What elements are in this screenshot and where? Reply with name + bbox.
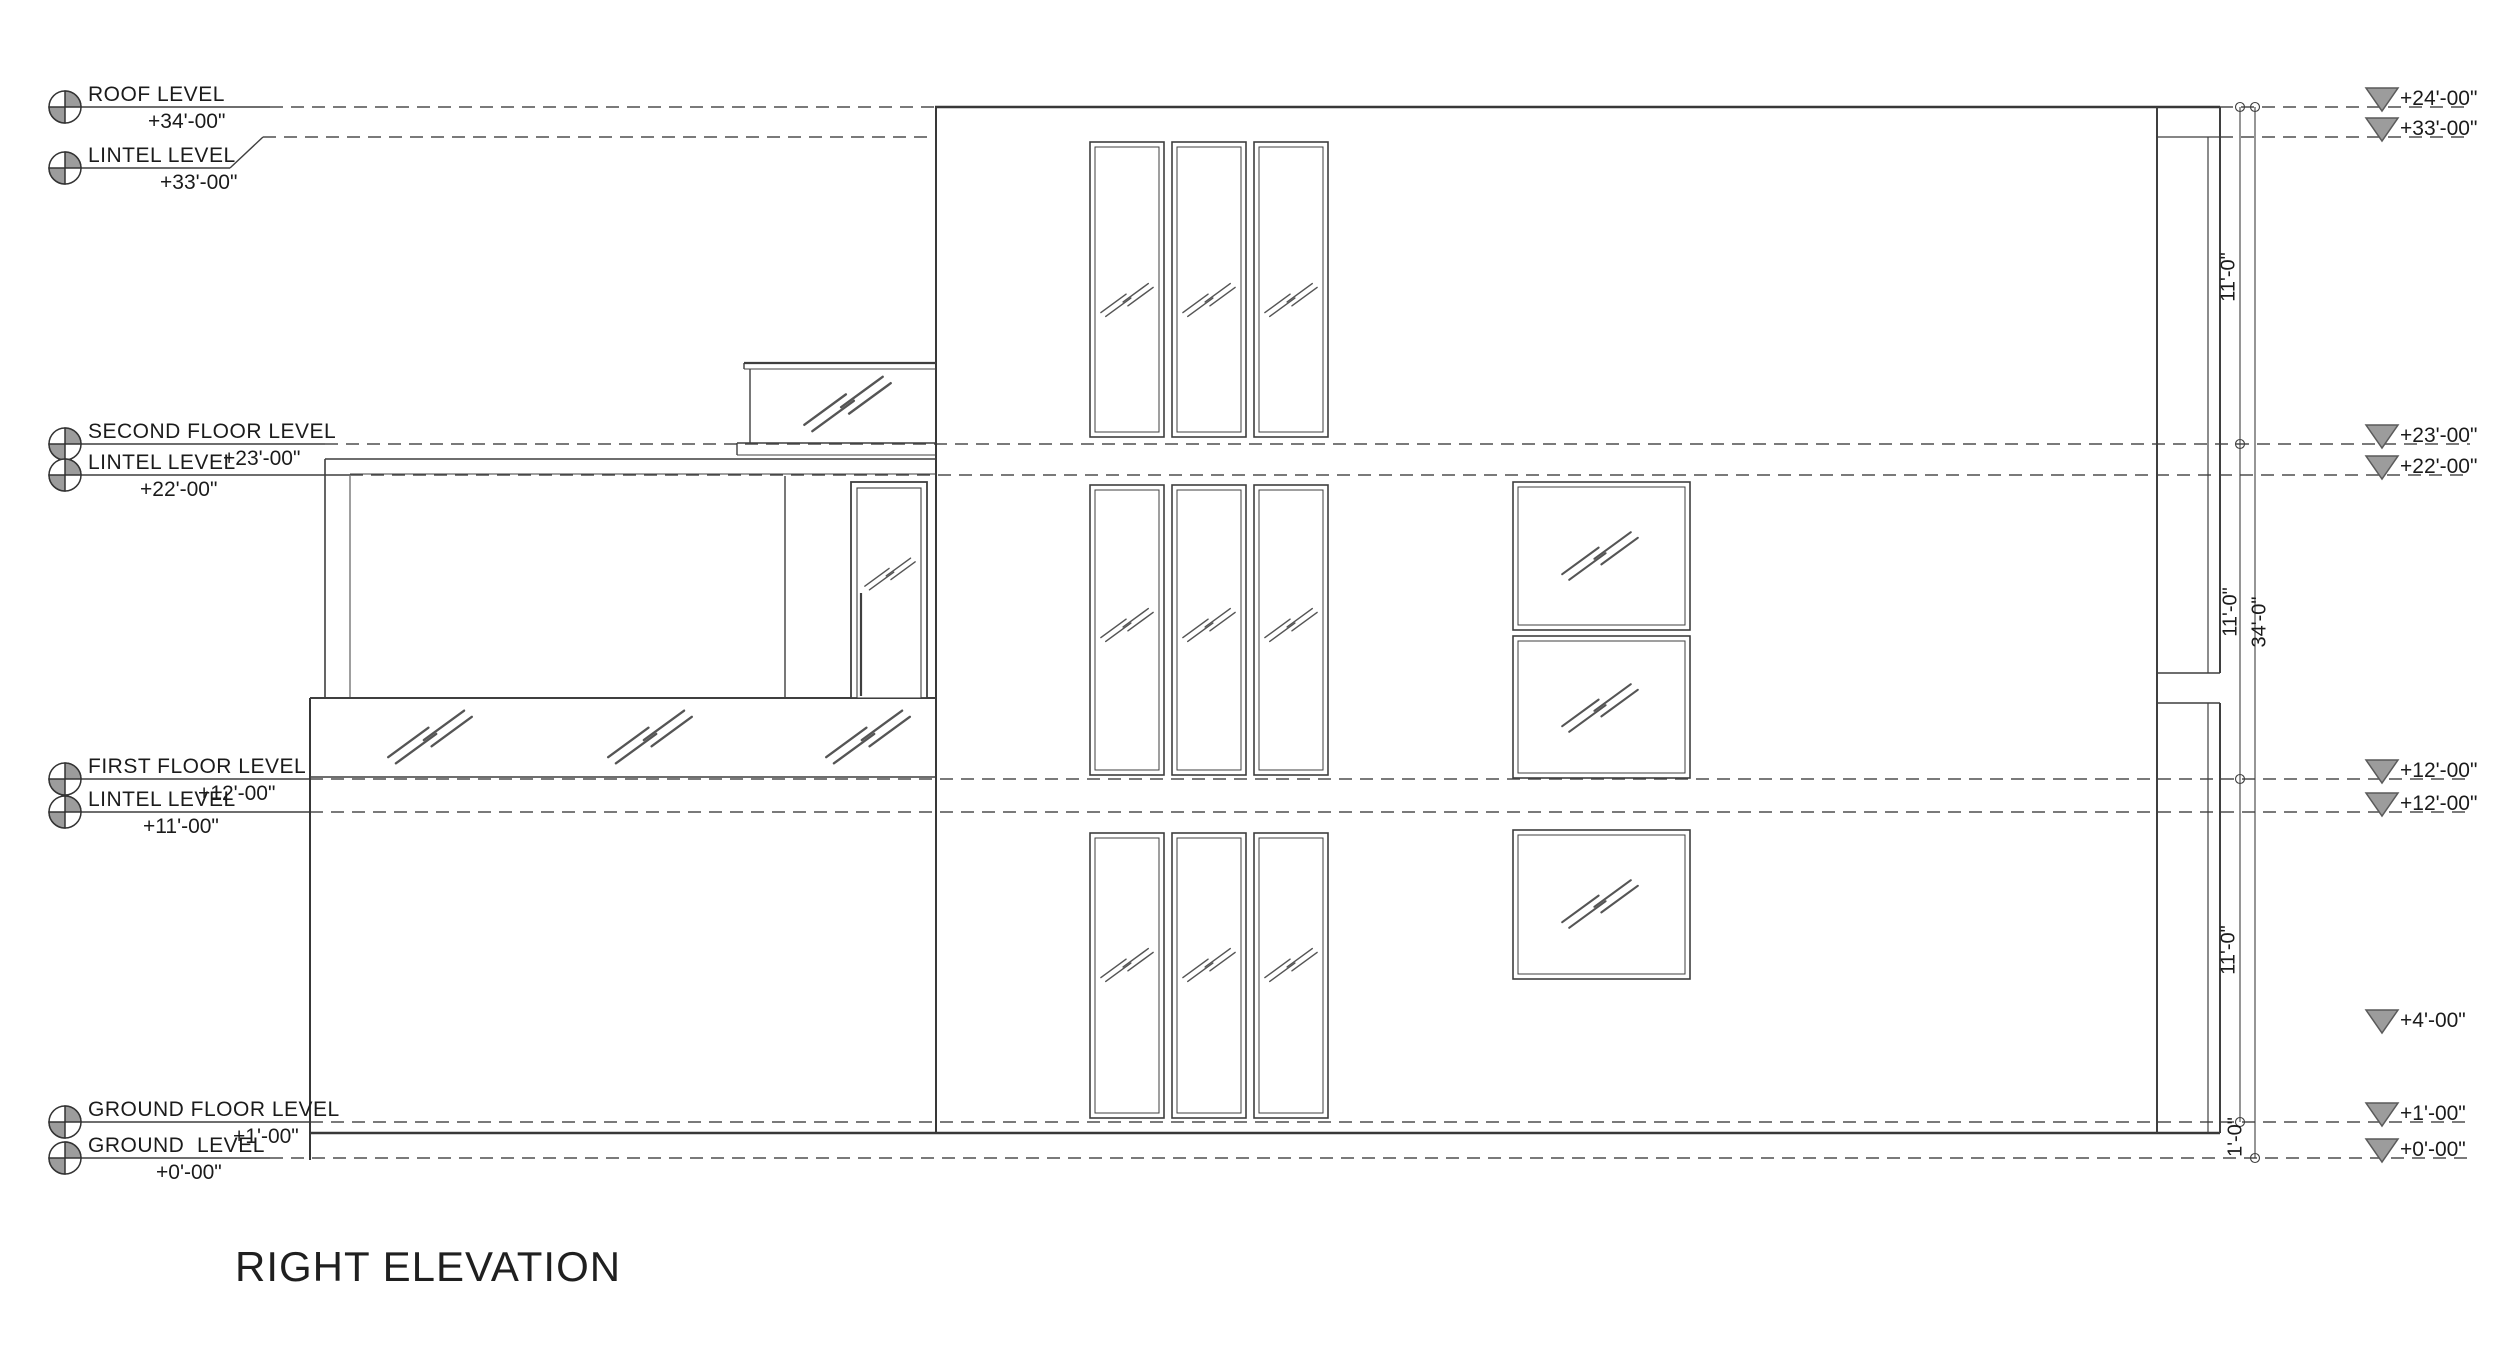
balcony-glass-band [388, 711, 910, 764]
level-name: GROUND FLOOR LEVEL [88, 1099, 340, 1122]
right-marker-12a: +12'-00" [2400, 759, 2477, 783]
level-label-lintel-33: LINTEL LEVEL +33'-00" [88, 145, 237, 193]
level-name: FIRST FLOOR LEVEL [88, 756, 306, 779]
right-column-strip [2157, 107, 2220, 1133]
elevation-sheet: ROOF LEVEL +34'-00" LINTEL LEVEL +33'-00… [0, 0, 2500, 1354]
level-marker-circle [49, 1142, 81, 1174]
dim-label-base: 1'-0" [2225, 1117, 2248, 1157]
triple-window-ground-floor [1090, 833, 1328, 1118]
level-name: SECOND FLOOR LEVEL [88, 421, 336, 444]
elevation-marker-triangles [2366, 88, 2398, 1162]
level-marker-circle [49, 459, 81, 491]
level-marker-circle [49, 1106, 81, 1138]
right-marker-24: +24'-00" [2400, 87, 2477, 111]
level-marker-circle [49, 763, 81, 795]
level-value: +34'-00" [88, 111, 225, 132]
right-marker-12b: +12'-00" [2400, 792, 2477, 816]
level-value: +0'-00" [88, 1162, 265, 1183]
level-label-lintel-11: LINTEL LEVEL +11'-00" [88, 789, 236, 837]
elevation-triangle-icon [2366, 1010, 2398, 1033]
level-name: LINTEL LEVEL [88, 452, 236, 475]
right-marker-23: +23'-00" [2400, 424, 2477, 448]
dim-label-mid: 11'-0" [2220, 587, 2243, 636]
level-name: ROOF LEVEL [88, 84, 225, 107]
level-label-roof: ROOF LEVEL +34'-00" [88, 84, 225, 132]
terrace-structure [310, 459, 936, 777]
dim-label-lower: 11'-0" [2218, 925, 2241, 974]
triple-window-second-floor [1090, 485, 1328, 775]
level-value: +33'-00" [88, 172, 237, 193]
level-marker-circles [49, 91, 81, 1174]
drawing-title: RIGHT ELEVATION [235, 1243, 621, 1291]
square-window-ground [1513, 830, 1690, 979]
level-name: LINTEL LEVEL [88, 789, 236, 812]
triple-window-top-floor [1090, 142, 1328, 437]
level-value: +22'-00" [88, 479, 236, 500]
dim-label-overall: 34'-0" [2249, 597, 2272, 648]
right-marker-22: +22'-00" [2400, 455, 2477, 479]
level-name: GROUND LEVEL [88, 1135, 265, 1158]
level-marker-circle [49, 796, 81, 828]
right-marker-1: +1'-00" [2400, 1102, 2466, 1126]
right-marker-0: +0'-00" [2400, 1138, 2466, 1162]
terrace-door [851, 482, 927, 698]
right-marker-33: +33'-00" [2400, 117, 2477, 141]
level-leader-lines [65, 107, 350, 1158]
level-label-lintel-22: LINTEL LEVEL +22'-00" [88, 452, 236, 500]
level-lines-dashed [263, 107, 2470, 1158]
roof-glass-screen [737, 363, 936, 455]
dim-label-upper: 11'-0" [2218, 252, 2241, 301]
square-window-stack [1513, 482, 1690, 778]
level-marker-circle [49, 91, 81, 123]
level-marker-circle [49, 152, 81, 184]
level-label-ground: GROUND LEVEL +0'-00" [88, 1135, 265, 1183]
level-marker-circle [49, 428, 81, 460]
drawing-canvas [0, 0, 2500, 1354]
level-value: +11'-00" [88, 816, 236, 837]
level-name: LINTEL LEVEL [88, 145, 237, 168]
right-marker-4: +4'-00" [2400, 1009, 2466, 1033]
